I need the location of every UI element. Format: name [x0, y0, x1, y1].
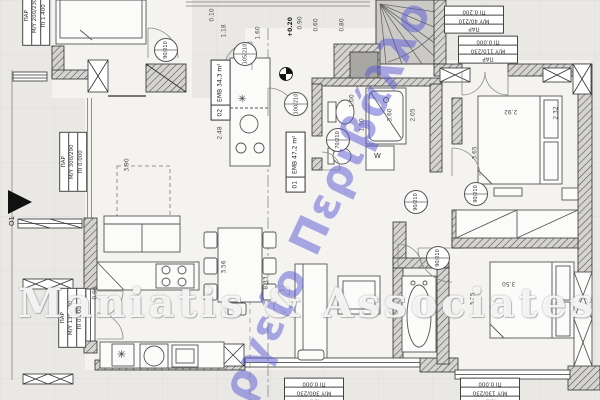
level-marker-text: +0.20 — [288, 17, 294, 37]
dimension-text: 3.15 — [471, 292, 477, 305]
door-label: 90/210 — [404, 190, 428, 214]
dimension-text: 1.00 — [350, 94, 356, 107]
dimension-text: 3.65 — [473, 146, 479, 159]
room-id: 01 — [287, 177, 305, 192]
room-area: ΕΜΒ 47,2 m² — [287, 132, 305, 177]
kitchen-column — [230, 58, 270, 166]
dimension-text: 3.56 — [222, 260, 228, 273]
window-label: ΠΑΡΜ/Υ 300/230ΠΙ 0.000 — [284, 378, 344, 400]
door-label: 90/210 — [426, 246, 450, 270]
door-label: 70/210 — [326, 128, 350, 152]
hood-icon: ✳ — [117, 349, 126, 360]
window-label: ΠΑΡΜ/Υ 110/230ΠΙ 0.000 — [458, 36, 518, 64]
door-label: 105/210 — [233, 42, 257, 66]
dimension-text: 2.32 — [554, 106, 560, 119]
window-label: ΠΑΡΜ/Υ 200/230ΠΙ 1.400 — [22, 0, 50, 46]
dimension-text: 1.60 — [256, 26, 262, 39]
room-label-01: 01 ΕΜΒ 47,2 m² — [286, 131, 306, 192]
dimension-text: 3.60 — [388, 108, 394, 121]
tv-unit — [338, 276, 380, 314]
floor-plan: 02 ΕΜΒ 34,3 m² 01 ΕΜΒ 47,2 m² ΠΑΡΜ/Υ 200… — [0, 0, 600, 400]
dimension-text: 1.50 — [360, 118, 366, 131]
dimension-text: 0.60 — [314, 18, 320, 31]
window-label: ΠΑΡΜ/Υ 300/290ΠΙ 0.000 — [59, 132, 87, 192]
dimension-text: 0.80 — [340, 18, 346, 31]
door-label: 90/210 — [154, 38, 178, 62]
wardrobe-row — [456, 210, 578, 238]
dimension-text: 0.10 — [210, 8, 216, 21]
wardrobe-right — [574, 272, 592, 366]
window-label: ΠΑΡΜ/Υ 40/210ΠΙ 0.200 — [444, 6, 504, 34]
dimension-text: 8.33 — [264, 276, 270, 289]
door-label: 90/210 — [464, 182, 488, 206]
dimension-text: 3.50 — [502, 280, 515, 286]
hood-icon: ✳ — [238, 95, 246, 105]
bed-top-left — [56, 0, 146, 44]
staircase — [376, 0, 436, 64]
dimension-text: 2.48 — [218, 126, 224, 139]
sofa-long — [295, 264, 327, 360]
bathtub-2 — [402, 276, 436, 352]
sofa-left — [104, 216, 180, 252]
window-label: ΠΑΡΜ/Υ 130/230ΠΙ 0.000 — [460, 378, 520, 400]
dimension-text: 2.92 — [504, 108, 517, 114]
room-id: 02 — [212, 105, 230, 120]
room-area: ΕΜΒ 34,3 m² — [212, 60, 230, 105]
window-label: ΠΑΡΜ/Υ 130/230ΠΙ 0.000 — [58, 288, 86, 348]
dimension-text: 0.90 — [298, 16, 304, 29]
kitchen-hob — [97, 262, 199, 290]
dimension-text: 2.05 — [411, 108, 417, 121]
bed-bottom-right — [490, 262, 574, 338]
door-label: 100/210 — [284, 92, 308, 116]
dimension-text: 1.18 — [222, 24, 228, 37]
section-marker-text: O1 — [8, 206, 16, 226]
dimension-text: 2.62 — [117, 300, 123, 313]
level-marker-icon — [280, 68, 293, 81]
dimension-text: 0.90 — [93, 286, 99, 299]
room-label-02: 02 ΕΜΒ 34,3 m² — [211, 59, 231, 120]
dimension-text: 3.90 — [125, 158, 131, 171]
washer-letter: W — [374, 153, 381, 160]
